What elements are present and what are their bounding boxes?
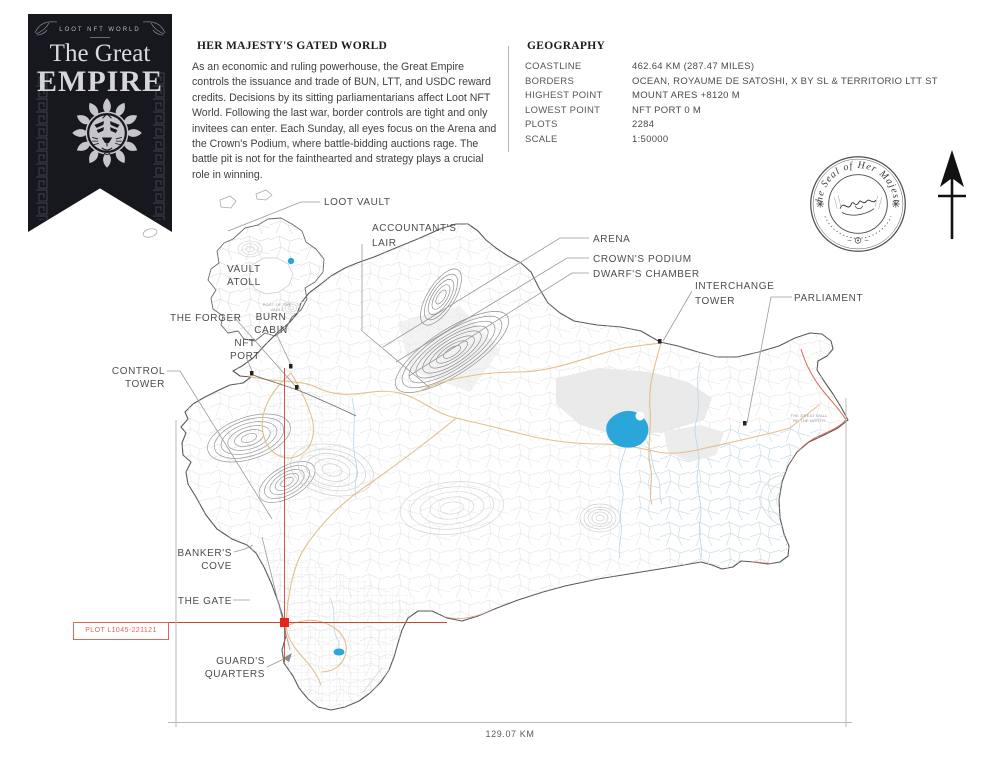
intro-paragraph: As an economic and ruling powerhouse, th… — [192, 60, 498, 183]
atoll-port-dot — [288, 258, 294, 264]
header-divider — [508, 46, 509, 152]
geography-heading: GEOGRAPHY — [527, 40, 945, 52]
label-nft-port: NFT PORT — [226, 337, 264, 363]
label-vault-atoll: VAULT ATOLL — [227, 263, 279, 289]
banner-title-line2: EMPIRE — [28, 65, 172, 99]
banner-title-line1: The Great — [28, 40, 172, 68]
label-guards-quarters: GUARD'S QUARTERS — [193, 655, 265, 681]
geo-row-borders: BORDERSOCEAN, ROYAUME DE SATOSHI, X BY S… — [525, 75, 945, 90]
geo-row-highest: HIGHEST POINTMOUNT ARES +8120 M — [525, 89, 945, 104]
geo-row-scale: SCALE1:50000 — [525, 133, 945, 148]
label-the-gate: THE GATE — [172, 595, 232, 608]
geo-row-lowest: LOWEST POINTNFT PORT 0 M — [525, 104, 945, 119]
label-great-wall: THE GREAT WALL OF THE NORTH — [787, 413, 831, 423]
pond — [334, 649, 345, 656]
intro-block: HER MAJESTY'S GATED WORLD As an economic… — [192, 40, 498, 183]
svg-text:The Seal of Her Majesty: The Seal of Her Majesty — [806, 152, 902, 204]
label-burn-cabin: BURN CABIN — [247, 311, 295, 337]
seal-signature — [840, 200, 876, 215]
royal-seal-icon: The Seal of Her Majesty — [806, 152, 910, 256]
geography-panel: GEOGRAPHY COASTLINE462.64 KM (287.47 MIL… — [525, 40, 945, 147]
geo-row-plots: PLOTS2284 — [525, 118, 945, 133]
label-crowns-podium: CROWN'S PODIUM — [593, 253, 692, 266]
plot-marker-callout: PLOT L1045-221121 — [73, 622, 169, 640]
label-loot-vault: LOOT VAULT — [324, 196, 391, 209]
label-parliament: PARLIAMENT — [794, 292, 863, 305]
label-control-tower: CONTROL TOWER — [103, 365, 165, 391]
label-the-forger: THE FORGER — [170, 312, 232, 325]
seal-text: The Seal of Her Majesty — [806, 152, 902, 204]
plot-location-marker — [280, 618, 289, 627]
north-arrow-icon — [934, 147, 970, 247]
page-title: HER MAJESTY'S GATED WORLD — [197, 40, 498, 52]
geo-row-coastline: COASTLINE462.64 KM (287.47 MILES) — [525, 60, 945, 75]
lion-head-icon — [70, 96, 144, 170]
label-interchange-tower: INTERCHANGE TOWER — [695, 279, 789, 309]
label-accountants-lair: ACCOUNTANT'S LAIR — [372, 221, 472, 251]
label-arena: ARENA — [593, 233, 630, 246]
banner-kicker: LOOT NFT WORLD — [28, 27, 172, 33]
label-bankers-cove: BANKER'S COVE — [170, 547, 232, 573]
map-poster-page: LOOT NFT WORLD The Great EMPIRE — [0, 0, 1000, 784]
scale-bar-label: 129.07 KM — [430, 729, 590, 739]
banner-kicker-rule — [90, 37, 110, 38]
label-dwarfs-chamber: DWARF'S CHAMBER — [593, 268, 700, 281]
label-port-of-the-vault: PORT OF THE VAULT — [258, 302, 296, 312]
